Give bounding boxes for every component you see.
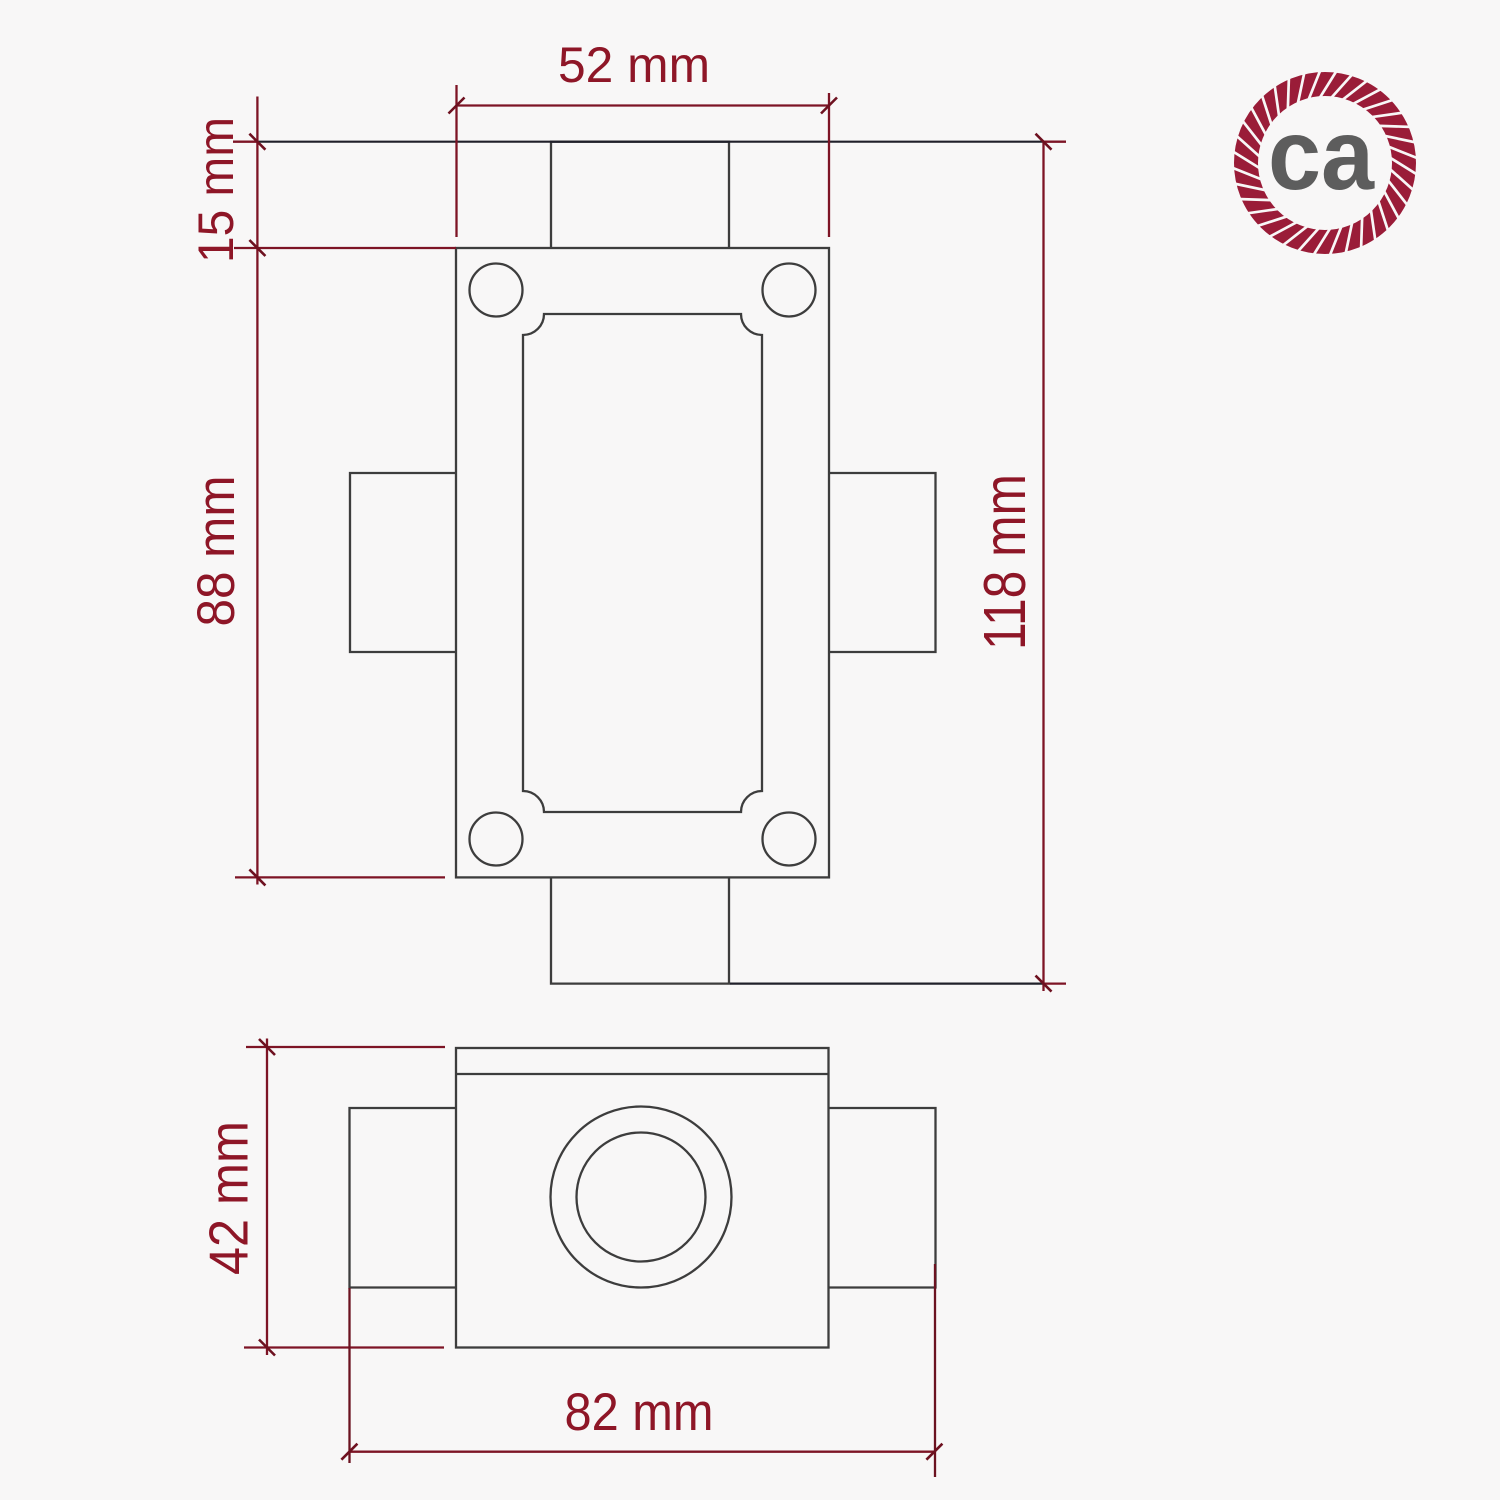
svg-text:88 mm: 88 mm [187, 476, 246, 627]
svg-text:15 mm: 15 mm [188, 117, 244, 263]
svg-text:ca: ca [1268, 99, 1375, 211]
svg-text:42 mm: 42 mm [198, 1121, 260, 1275]
svg-text:52 mm: 52 mm [558, 37, 710, 93]
svg-text:82 mm: 82 mm [565, 1383, 714, 1442]
svg-text:118 mm: 118 mm [972, 474, 1038, 650]
